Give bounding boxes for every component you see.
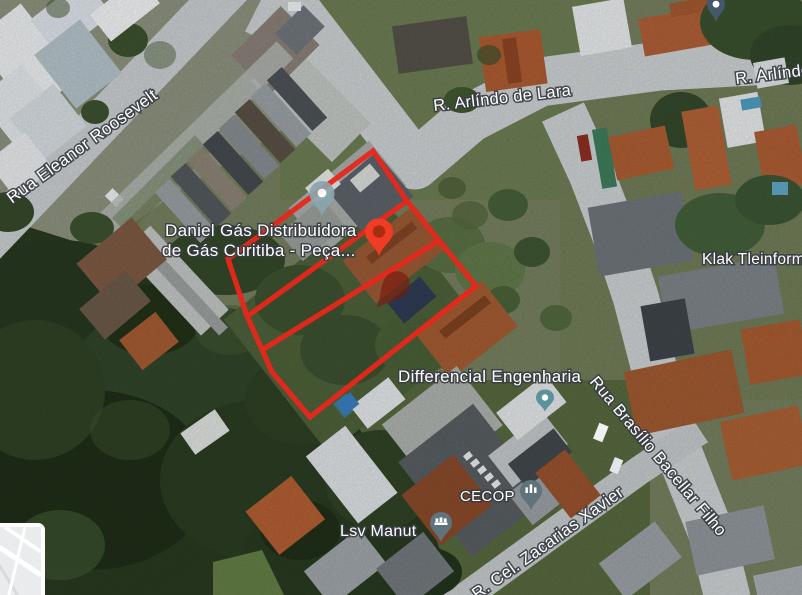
svg-text:de Gás Curitiba - Peça...: de Gás Curitiba - Peça... [162,241,356,260]
svg-text:CECOP: CECOP [460,488,515,505]
svg-text:Lsv Manut: Lsv Manut [340,523,417,540]
svg-text:Klak Tleinforma: Klak Tleinforma [702,251,802,268]
svg-text:Daniel Gás Distribuidora: Daniel Gás Distribuidora [165,221,357,240]
svg-text:Differencial Engenharia: Differencial Engenharia [398,367,582,386]
